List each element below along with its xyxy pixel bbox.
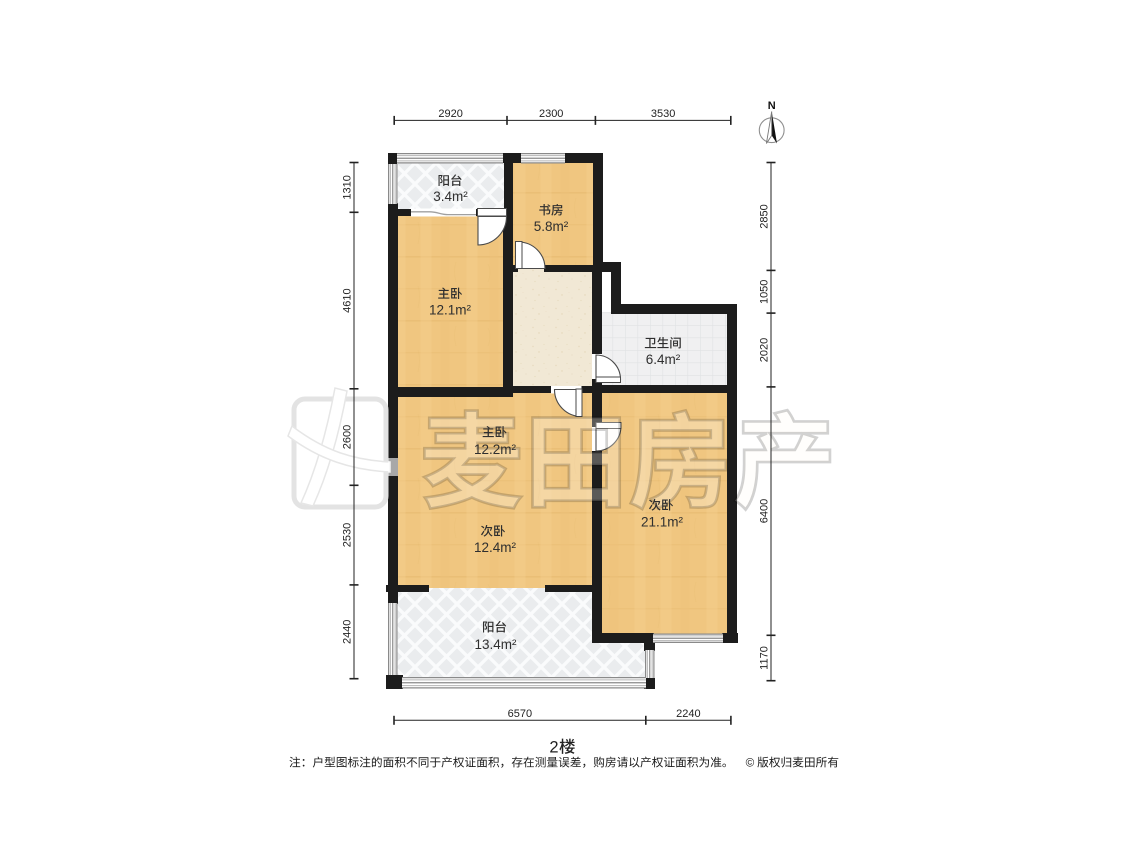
svg-text:6570: 6570 xyxy=(508,708,532,720)
svg-text:2850: 2850 xyxy=(759,204,771,228)
svg-text:2920: 2920 xyxy=(438,108,462,120)
svg-text:21.1m²: 21.1m² xyxy=(641,515,684,530)
svg-text:2020: 2020 xyxy=(759,338,771,362)
svg-text:2530: 2530 xyxy=(342,523,354,547)
svg-text:1310: 1310 xyxy=(342,175,354,199)
svg-text:4610: 4610 xyxy=(342,288,354,312)
svg-text:N: N xyxy=(768,100,776,112)
svg-text:5.8m²: 5.8m² xyxy=(534,219,569,234)
svg-text:3530: 3530 xyxy=(651,108,675,120)
svg-text:12.4m²: 12.4m² xyxy=(474,540,517,555)
svg-text:13.4m²: 13.4m² xyxy=(474,637,517,652)
svg-text:©: © xyxy=(746,757,755,770)
svg-text:6.4m²: 6.4m² xyxy=(646,352,681,367)
svg-text:2: 2 xyxy=(549,739,558,757)
svg-text:3.4m²: 3.4m² xyxy=(433,189,468,204)
svg-text:2240: 2240 xyxy=(676,708,700,720)
svg-text:2600: 2600 xyxy=(342,425,354,449)
svg-text:1170: 1170 xyxy=(759,646,771,670)
svg-text:2300: 2300 xyxy=(539,108,563,120)
svg-text:12.2m²: 12.2m² xyxy=(474,442,517,457)
svg-text:1050: 1050 xyxy=(759,280,771,304)
svg-text:12.1m²: 12.1m² xyxy=(429,303,472,318)
svg-text:6400: 6400 xyxy=(759,499,771,523)
svg-text:2440: 2440 xyxy=(342,620,354,644)
